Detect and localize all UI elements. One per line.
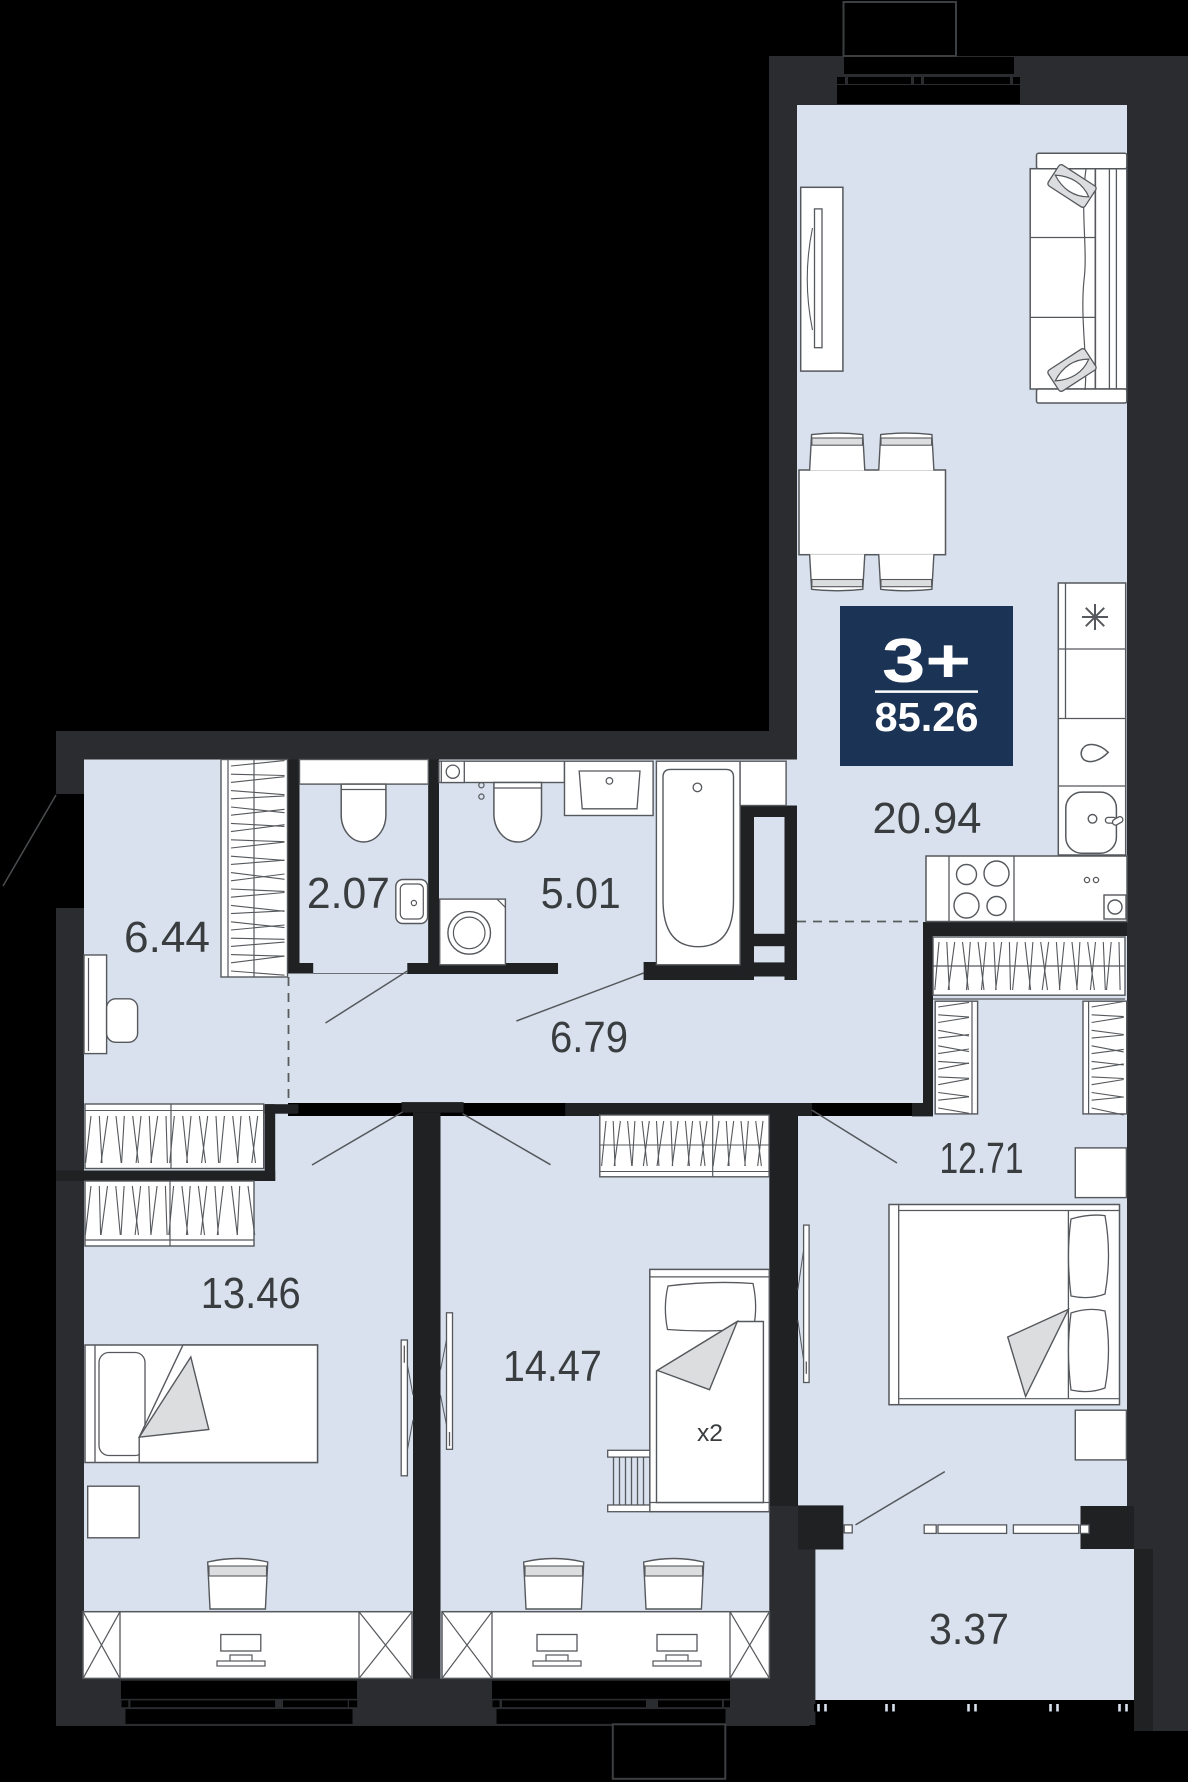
svg-text:20.94: 20.94 <box>873 794 982 843</box>
svg-text:3+: 3+ <box>882 627 971 696</box>
svg-text:x2: x2 <box>697 1420 723 1447</box>
svg-text:3.37: 3.37 <box>929 1605 1009 1654</box>
svg-text:6.44: 6.44 <box>124 913 210 962</box>
svg-text:85.26: 85.26 <box>875 694 979 740</box>
svg-text:14.47: 14.47 <box>503 1342 602 1391</box>
svg-text:5.01: 5.01 <box>541 869 621 918</box>
svg-text:13.46: 13.46 <box>201 1269 301 1318</box>
svg-text:6.79: 6.79 <box>550 1013 628 1062</box>
svg-text:12.71: 12.71 <box>940 1134 1024 1183</box>
svg-text:2.07: 2.07 <box>307 869 390 918</box>
